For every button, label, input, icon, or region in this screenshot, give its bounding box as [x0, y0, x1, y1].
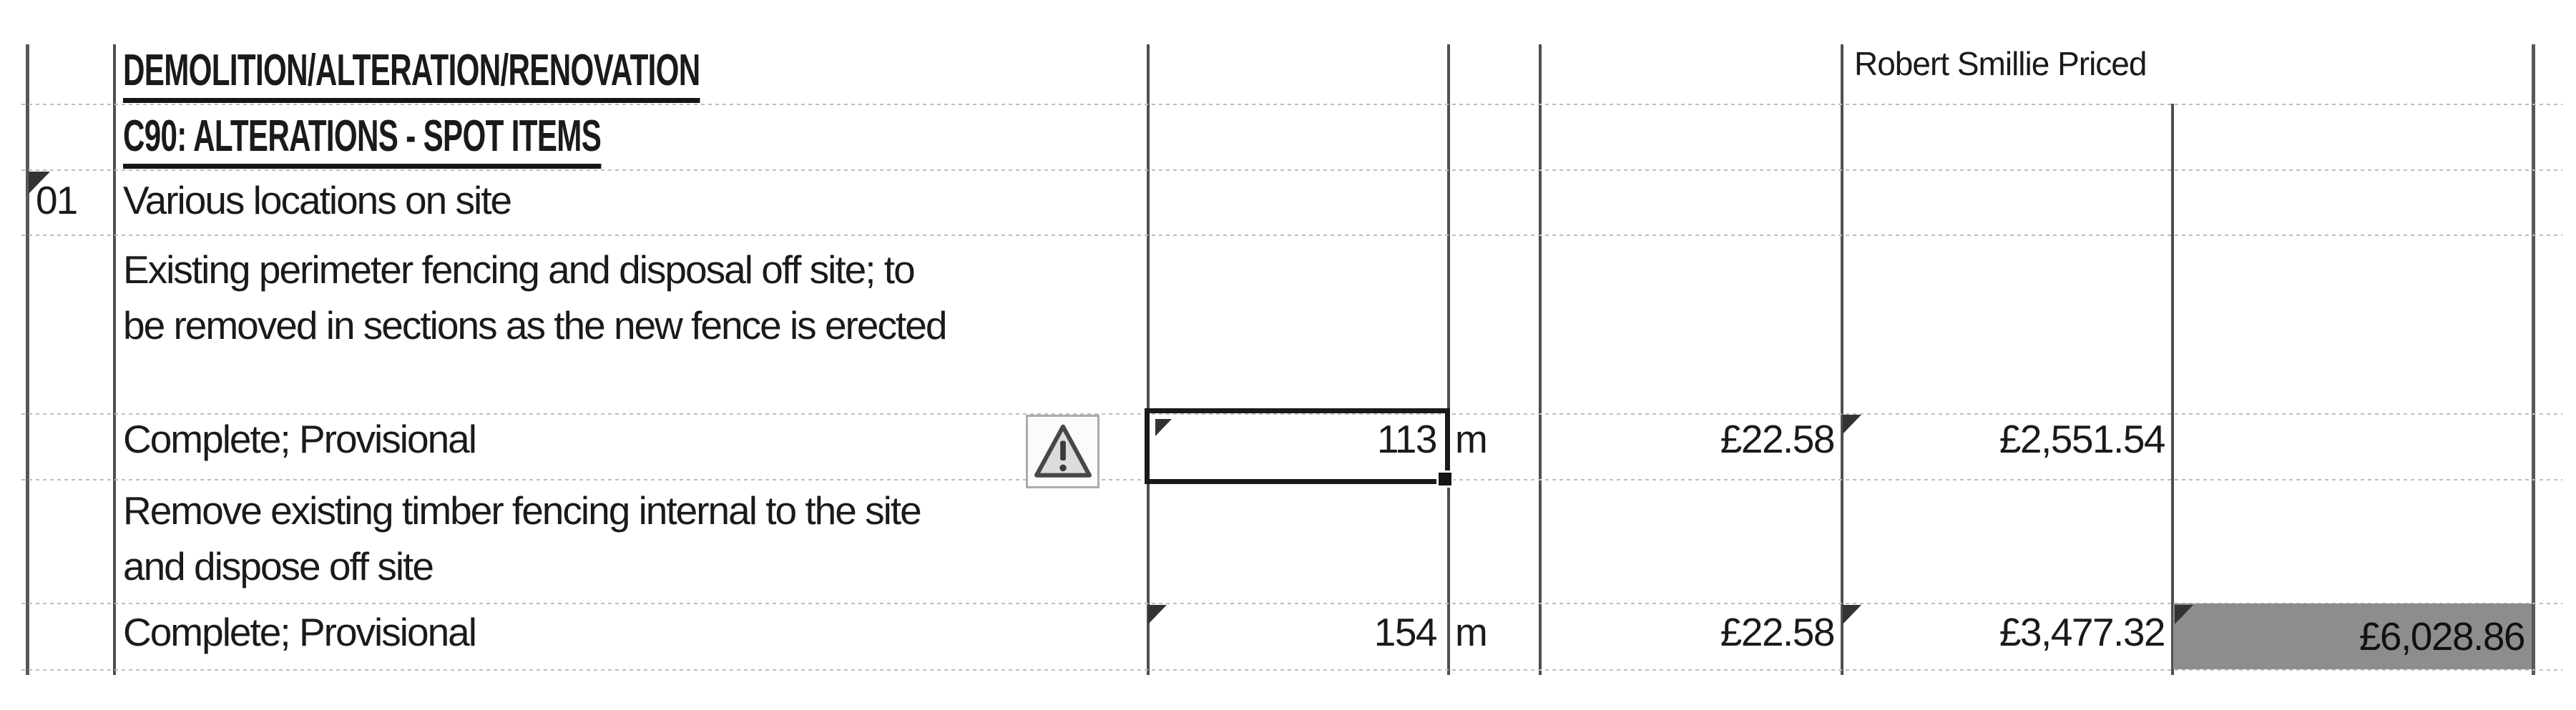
- entry2-description-line2[interactable]: and dispose off site: [123, 545, 433, 589]
- cell-error-indicator: [1155, 419, 1172, 436]
- cell-error-indicator: [1843, 415, 1861, 434]
- column-gridline-description-quantity: [1147, 44, 1150, 675]
- entry2-quantity-cell[interactable]: 154: [1173, 611, 1436, 655]
- section-heading-cell[interactable]: DEMOLITION/ALTERATION/RENOVATION: [123, 46, 700, 103]
- entry2-amount-cell[interactable]: £3,477.32: [1889, 611, 2165, 655]
- row-gridline: [21, 669, 2562, 671]
- entry1-amount-cell[interactable]: £2,551.54: [1889, 418, 2165, 462]
- entry2-rate-cell[interactable]: £22.58: [1559, 611, 1834, 655]
- entry1-status-cell[interactable]: Complete; Provisional: [123, 418, 476, 462]
- spreadsheet-canvas: DEMOLITION/ALTERATION/RENOVATION C90: AL…: [0, 0, 2576, 710]
- row-gridline: [21, 104, 2562, 105]
- entry2-status-cell[interactable]: Complete; Provisional: [123, 611, 476, 655]
- cell-error-indicator: [1148, 605, 1167, 624]
- row-gridline: [21, 169, 2562, 171]
- selection-fill-handle[interactable]: [1436, 470, 1454, 488]
- column-gridline-item-description: [113, 44, 116, 675]
- entry1-unit-cell[interactable]: m: [1455, 418, 1487, 462]
- warning-triangle-glyph: [1032, 421, 1094, 483]
- warning-triangle-icon[interactable]: [1026, 415, 1100, 488]
- row-gridline: [21, 235, 2562, 236]
- entry1-rate-cell[interactable]: £22.58: [1559, 418, 1834, 462]
- entry1-description-line1[interactable]: Existing perimeter fencing and disposal …: [123, 248, 914, 292]
- column-gridline-quantity-unit: [1447, 44, 1450, 675]
- entry2-unit-cell[interactable]: m: [1455, 611, 1487, 655]
- section-total-value: £6,028.86: [2359, 603, 2524, 669]
- entry1-quantity-cell[interactable]: 113: [1173, 418, 1436, 462]
- cell-error-indicator: [2175, 605, 2193, 624]
- item-location-cell[interactable]: Various locations on site: [123, 179, 511, 223]
- priced-note-cell[interactable]: Robert Smillie Priced: [1854, 46, 2146, 83]
- section-total-cell[interactable]: £6,028.86: [2173, 603, 2532, 669]
- subsection-heading-cell[interactable]: C90: ALTERATIONS - SPOT ITEMS: [123, 112, 601, 169]
- cell-error-indicator: [1843, 605, 1861, 624]
- entry1-description-line2[interactable]: be removed in sections as the new fence …: [123, 304, 946, 348]
- column-gridline-left-border: [26, 44, 29, 675]
- column-gridline-amount-total: [2171, 104, 2174, 675]
- item-number-cell[interactable]: 01: [36, 179, 77, 223]
- column-gridline-rate-amount: [1841, 44, 1843, 675]
- entry2-description-line1[interactable]: Remove existing timber fencing internal …: [123, 489, 921, 533]
- column-gridline-right-border: [2532, 44, 2535, 675]
- column-gridline-unit-rate: [1539, 44, 1542, 675]
